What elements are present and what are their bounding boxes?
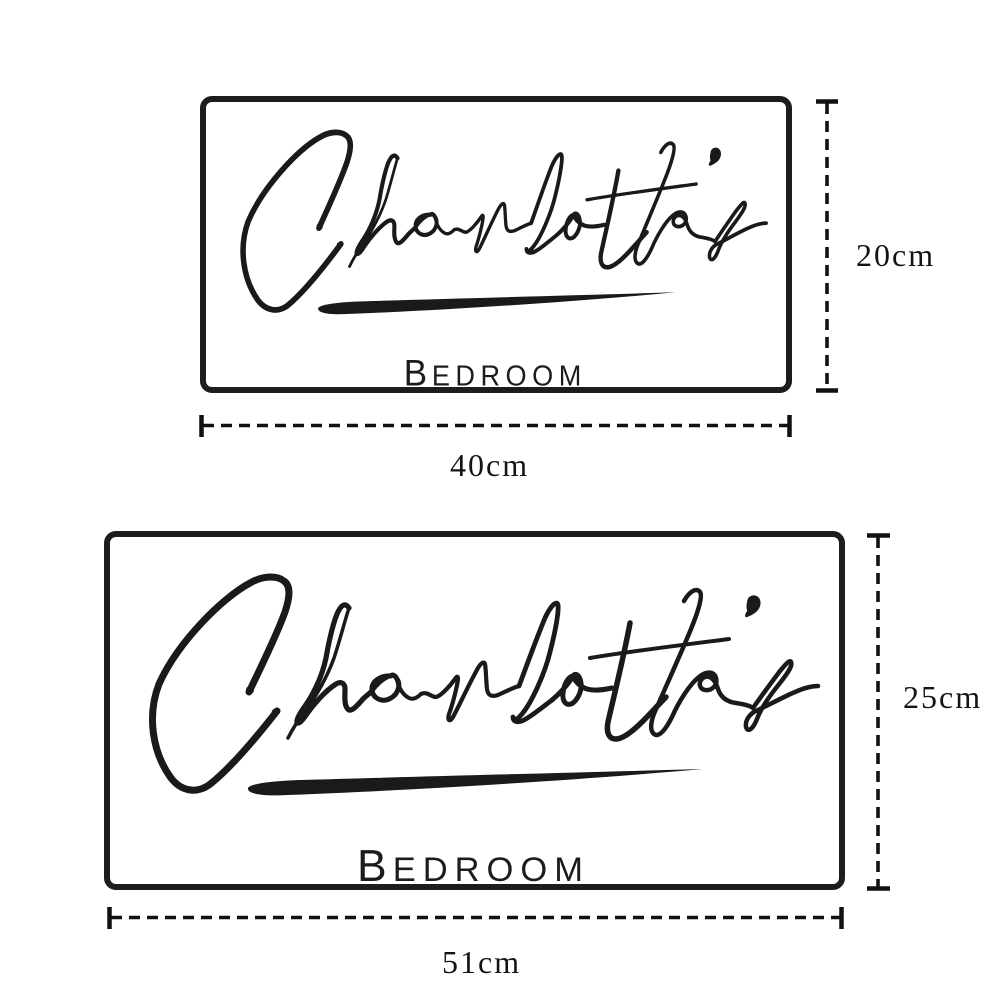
svg-text:51cm: 51cm xyxy=(442,944,521,980)
svg-text:25cm: 25cm xyxy=(903,679,982,715)
svg-text:20cm: 20cm xyxy=(856,237,935,273)
svg-text:40cm: 40cm xyxy=(450,447,529,483)
